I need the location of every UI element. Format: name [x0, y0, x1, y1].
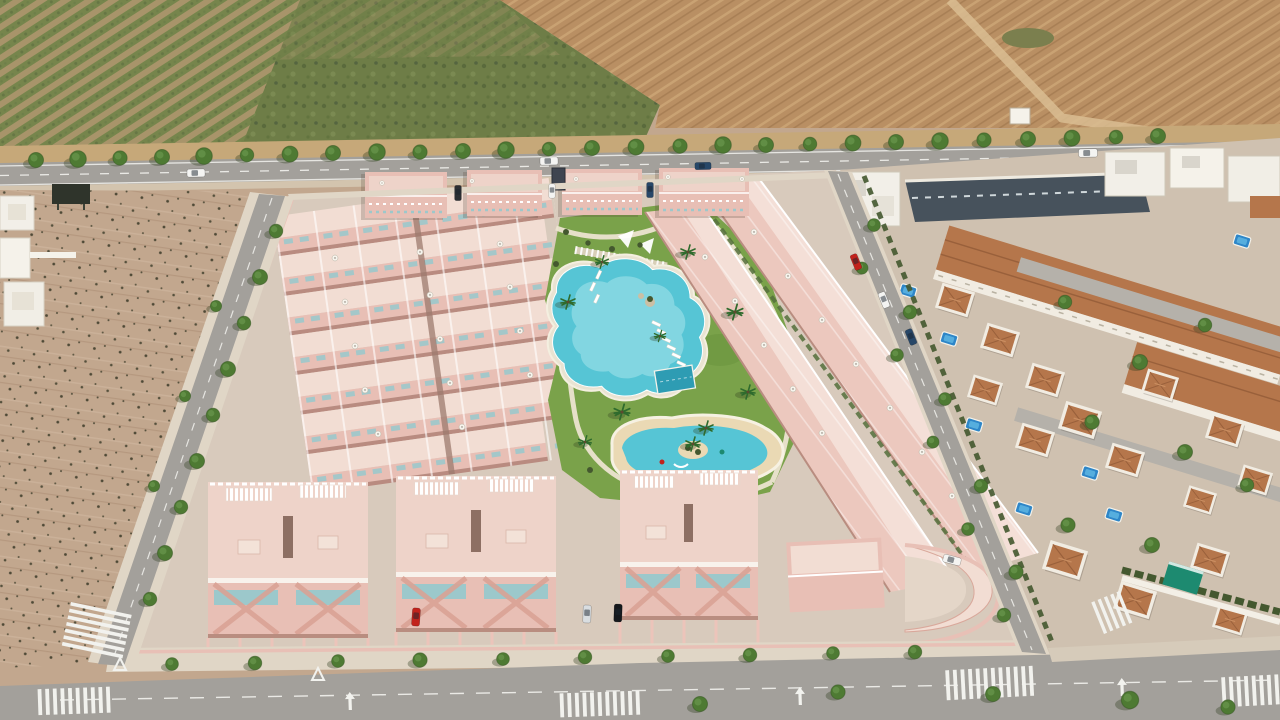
parasol [375, 431, 381, 437]
parasol [819, 317, 825, 323]
apartment-block [463, 170, 542, 218]
parasol [527, 372, 533, 378]
parasol [362, 387, 368, 393]
pool-shallow [572, 276, 686, 378]
parasol [417, 249, 423, 255]
parked-car [455, 185, 462, 200]
hedge-bush [609, 246, 615, 252]
island-bush [647, 296, 653, 302]
parked-car [549, 184, 555, 198]
parked-car [583, 605, 592, 623]
parasol [853, 361, 859, 367]
parasol [427, 292, 433, 298]
parasol [751, 229, 757, 235]
parasol [949, 493, 955, 499]
island-bush [695, 449, 701, 455]
townhouse-grid [273, 178, 589, 494]
parasol [352, 343, 358, 349]
hedge-bush [553, 261, 559, 267]
vehicle [540, 157, 558, 165]
parked-car [411, 608, 420, 627]
parasol [761, 342, 767, 348]
parasol [459, 424, 465, 430]
parked-car [614, 604, 623, 622]
field-brush-mound [1002, 28, 1054, 48]
screenshot-canvas [0, 0, 1280, 720]
parasol [702, 254, 708, 260]
parasol [790, 386, 796, 392]
hedge-bush [585, 240, 590, 245]
field-hut [1010, 108, 1030, 124]
play-feature-teal [720, 450, 725, 455]
parasol [919, 449, 925, 455]
parasol [342, 299, 348, 305]
hedge-bush [587, 467, 593, 473]
parasol [740, 177, 745, 182]
parasol [497, 241, 503, 247]
vehicle [695, 162, 711, 169]
pool-rock-island [638, 293, 644, 299]
parasol [819, 430, 825, 436]
parasol [517, 328, 523, 334]
parasol [437, 336, 443, 342]
parasol [666, 175, 671, 180]
parasol [447, 380, 453, 386]
duplex-block-1 [208, 482, 368, 658]
parasol [785, 273, 791, 279]
garage-court-building [786, 538, 885, 613]
parasol [332, 255, 338, 261]
vehicle [1078, 149, 1097, 158]
play-feature-red [660, 460, 665, 465]
apartment-block [558, 169, 642, 217]
parked-car [647, 182, 654, 197]
hedge-bush [637, 242, 642, 247]
parasol [574, 177, 579, 182]
hedge-bush [563, 229, 569, 235]
parasol [887, 405, 893, 411]
parasol [380, 181, 385, 186]
aerial-render-screenshot [0, 0, 1280, 720]
parasol [470, 179, 475, 184]
vehicle [187, 169, 205, 177]
parasol [732, 298, 738, 304]
duplex-block-2 [396, 476, 556, 654]
parasol [507, 284, 513, 290]
